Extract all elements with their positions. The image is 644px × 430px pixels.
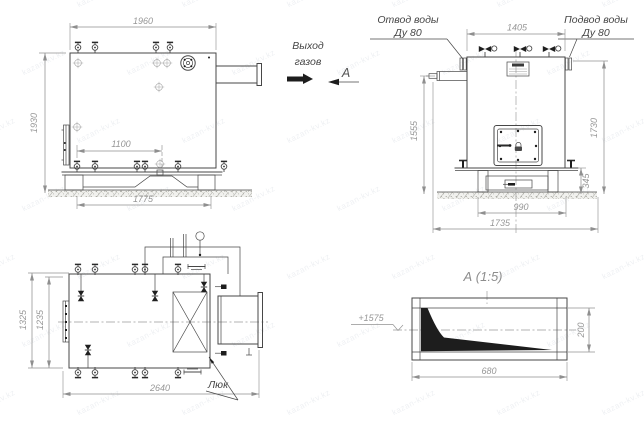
- flange-port: [181, 56, 195, 70]
- plan-view: 1325 1235 2640 Люк: [18, 232, 268, 400]
- dim-side-anchor-spacing: 1100: [111, 139, 130, 149]
- section-a-view: А (1:5) +1575 200: [351, 269, 595, 381]
- side-bottom-valves: [74, 161, 227, 172]
- dim-section-width: 680: [481, 366, 496, 376]
- gas-outlet-duct-plan: [218, 293, 263, 356]
- side-top-valves: [75, 42, 173, 53]
- front-dimensions: 1405 1555 1730 345 990 1735: [409, 23, 608, 234]
- side-left-plate: [62, 125, 70, 165]
- elevation-marker: +1575: [351, 313, 403, 331]
- base-frame-front: [455, 168, 578, 192]
- side-dimensions: 1960 1930 1100 1775: [29, 16, 216, 209]
- position-marks: [72, 58, 172, 169]
- hatch-text: Люк: [207, 379, 229, 391]
- dim-section-height: 200: [576, 322, 586, 338]
- water-inlet-dn: Ду 80: [581, 27, 610, 39]
- front-top-valves: [479, 46, 561, 57]
- door-latch-icon: [516, 142, 521, 146]
- furnace-door: [494, 126, 542, 166]
- ground-hatching-front: [437, 192, 597, 199]
- water-inlet-text: Подвод воды: [564, 14, 628, 26]
- dim-front-overall-width: 1735: [490, 218, 511, 228]
- dim-front-left-height: 1555: [409, 120, 419, 141]
- plan-interior-valves: [78, 274, 207, 368]
- water-inlet-label: Подвод воды Ду 80: [558, 14, 634, 57]
- water-inlet-flange: [565, 58, 571, 70]
- water-outlet-label: Отвод воды Ду 80: [370, 14, 463, 59]
- hatch-label: Люк: [206, 357, 238, 400]
- front-view: Отвод воды Ду 80 Подвод воды Ду 80 1405 …: [370, 14, 634, 235]
- dim-side-overall-height: 1930: [29, 113, 39, 133]
- dim-side-overall-width: 1960: [133, 16, 153, 26]
- section-mark-letter: А: [341, 66, 350, 80]
- drawing-canvas: 1960 1930 1100 1775 Выход газов А: [0, 0, 644, 430]
- dim-front-base-height: 345: [581, 173, 591, 189]
- deflector-wedge: [421, 308, 552, 351]
- plan-edge-valves: [75, 264, 181, 377]
- plan-left-plate: [63, 301, 69, 342]
- dim-front-top-width: 1405: [507, 23, 528, 33]
- gas-outlet-duct-side: [216, 64, 262, 86]
- dim-side-base-width: 1775: [133, 194, 154, 204]
- water-outlet-dn: Ду 80: [393, 27, 422, 39]
- front-base-bolts: [459, 161, 575, 168]
- water-outlet-text: Отвод воды: [377, 14, 439, 26]
- dim-plan-overall-depth: 1325: [18, 309, 28, 330]
- plan-bottom-fitting: [184, 369, 201, 375]
- section-cut-mark: А: [328, 66, 359, 85]
- base-frame-side: [62, 170, 222, 190]
- dim-plan-length: 2640: [149, 383, 170, 393]
- dim-front-base-inner: 990: [513, 202, 528, 212]
- nameplate: [507, 62, 529, 76]
- vent-point: [208, 57, 210, 59]
- duct-cross-section: [412, 298, 567, 360]
- gas-outlet-label: Выход газов: [287, 40, 324, 84]
- gas-outlet-text-2: газов: [295, 56, 322, 68]
- elevation-text: +1575: [358, 313, 384, 323]
- dim-plan-inner-depth: 1235: [35, 309, 45, 330]
- dim-front-right-height: 1730: [589, 118, 599, 138]
- water-outlet-flange: [426, 58, 467, 81]
- gas-flow-arrow-icon: [287, 74, 313, 85]
- handwheel-icon: [196, 232, 204, 240]
- section-arrow-icon: [328, 79, 339, 85]
- gas-outlet-text-1: Выход: [292, 40, 324, 52]
- side-view: 1960 1930 1100 1775 Выход газов А: [29, 16, 359, 209]
- section-a-title: А (1:5): [462, 269, 502, 284]
- boiler-technical-drawing: kazan-kv.kzkazan-kv.kzkazan-kv.kzkazan-k…: [0, 0, 644, 430]
